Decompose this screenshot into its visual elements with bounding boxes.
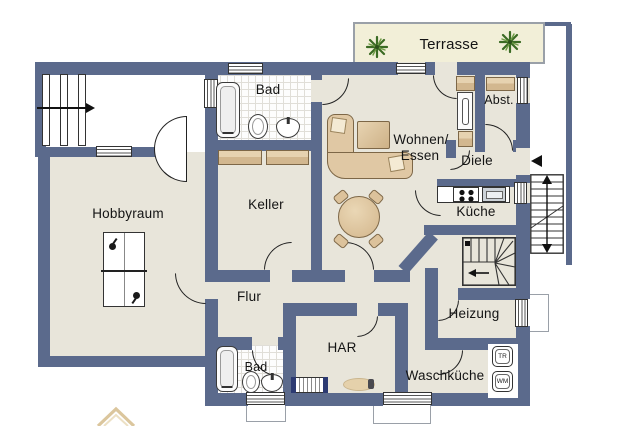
- wall-segment: [35, 147, 98, 157]
- stair-tread: [60, 74, 68, 146]
- wall-segment: [130, 147, 157, 157]
- wall-segment: [205, 62, 218, 80]
- coffee-table: [357, 121, 390, 149]
- wall-segment: [311, 102, 322, 280]
- bathtub: [216, 82, 240, 138]
- small-object: [368, 379, 374, 389]
- room-label-wohnen: Wohnen/: [393, 132, 448, 147]
- room-label-flur: Flur: [237, 289, 261, 304]
- room-label-heizung: Heizung: [449, 306, 500, 321]
- lightwell-bump-heating: [527, 294, 549, 332]
- room-label-hobbyraum: Hobbyraum: [92, 206, 164, 221]
- winder-staircase: [462, 237, 516, 286]
- wall-segment: [424, 225, 516, 235]
- room-label-essen: Essen: [401, 148, 440, 163]
- room-label-waschkueche: Waschküche: [406, 368, 485, 383]
- cabinet: [458, 131, 473, 147]
- wall-segment: [425, 62, 435, 75]
- stair-direction-arrow: [37, 107, 88, 109]
- wall-segment: [516, 203, 530, 299]
- sofa-pillow: [330, 117, 347, 134]
- cabinet: [266, 150, 309, 165]
- washing-machine: WM: [492, 371, 513, 392]
- wall-segment: [475, 140, 485, 152]
- lightwell-bump-bath: [246, 404, 286, 422]
- window: [228, 63, 263, 74]
- dryer-label: TR: [498, 353, 507, 360]
- wall-segment: [311, 75, 322, 80]
- lightwell-bump-laundry: [373, 404, 431, 424]
- wall-segment: [205, 270, 270, 282]
- cabinet: [486, 77, 515, 91]
- dining-table: [338, 196, 380, 238]
- wall-segment: [322, 62, 398, 75]
- radiator: [291, 377, 328, 393]
- window: [517, 77, 528, 104]
- washer-label: WM: [497, 378, 509, 385]
- wall-segment: [205, 393, 248, 406]
- stair-tread: [42, 74, 50, 146]
- tall-cupboard: [457, 92, 473, 130]
- wall-segment: [457, 62, 516, 75]
- stair-arrow-head-icon: [86, 103, 95, 113]
- wall-segment: [38, 356, 218, 367]
- entrance-arrow-icon: [531, 155, 542, 167]
- wall-segment: [283, 303, 357, 316]
- plant-icon: [364, 34, 390, 60]
- window: [96, 146, 132, 157]
- stove: [453, 187, 479, 202]
- stair-tread: [78, 74, 86, 146]
- north-chevron-icon: [90, 404, 142, 426]
- room-label-terrasse: Terrasse: [419, 36, 478, 53]
- window: [514, 182, 527, 204]
- room-label-har: HAR: [327, 340, 356, 355]
- dryer: TR: [492, 346, 513, 367]
- wall-segment: [278, 337, 285, 350]
- window: [515, 299, 528, 327]
- table-tennis-paddle-icon: [109, 243, 116, 250]
- floorplan-canvas: TR WM: [0, 0, 640, 426]
- cabinet: [456, 76, 475, 91]
- wall-segment: [475, 75, 485, 140]
- stove-burners-icon: [454, 188, 480, 203]
- wall-segment: [292, 270, 345, 282]
- window: [396, 63, 426, 74]
- kitchen-sink: [482, 187, 506, 202]
- window: [246, 392, 285, 405]
- toilet: [248, 114, 268, 139]
- wall-segment: [513, 140, 516, 152]
- wall-segment: [516, 326, 530, 406]
- wall-segment: [516, 62, 530, 78]
- bathtub: [216, 346, 238, 392]
- wall-segment: [516, 103, 530, 148]
- room-label-diele: Diele: [461, 153, 493, 168]
- wall-segment: [458, 288, 516, 300]
- table-tennis-paddle-icon: [133, 292, 140, 299]
- toilet: [242, 371, 260, 393]
- wall-segment: [38, 147, 50, 367]
- window: [383, 392, 432, 405]
- plant-icon: [497, 29, 523, 55]
- wall-segment: [285, 393, 383, 406]
- exterior-staircase: [530, 174, 564, 254]
- cabinet: [218, 150, 262, 165]
- exterior-thin-wall: [566, 24, 572, 265]
- room-label-bad-lower: Bad: [245, 360, 268, 374]
- room-label-kueche: Küche: [456, 204, 495, 219]
- room-label-keller: Keller: [248, 197, 284, 212]
- room-label-abst: Abst.: [484, 93, 514, 107]
- room-label-bad-upper: Bad: [256, 82, 281, 97]
